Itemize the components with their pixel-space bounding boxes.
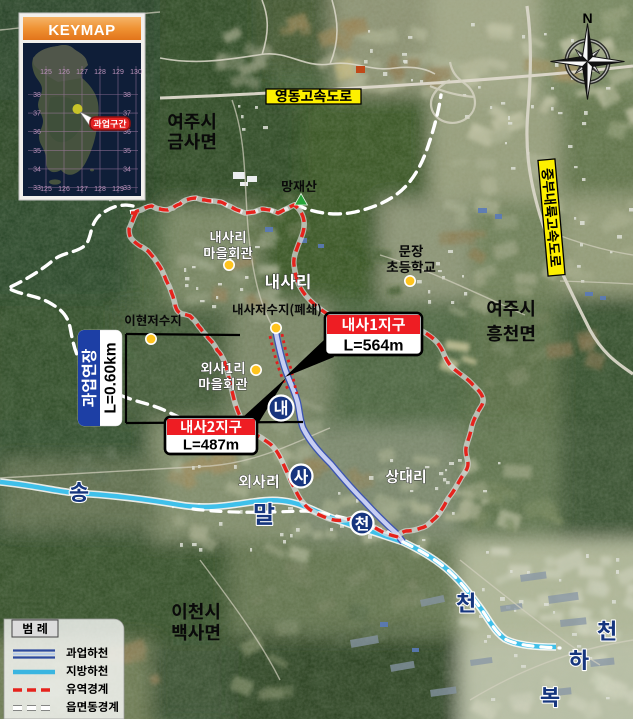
svg-text:127: 127 [76, 69, 88, 76]
svg-text:L=0.60km: L=0.60km [103, 342, 120, 413]
svg-text:125: 125 [40, 186, 52, 193]
svg-text:126: 126 [58, 186, 70, 193]
svg-text:128: 128 [94, 186, 106, 193]
svg-text:35: 35 [123, 148, 131, 155]
svg-text:35: 35 [33, 148, 41, 155]
svg-text:130: 130 [130, 69, 142, 76]
svg-text:38: 38 [33, 92, 41, 99]
svg-text:34: 34 [33, 166, 41, 173]
svg-text:36: 36 [33, 129, 41, 136]
svg-text:128: 128 [94, 69, 106, 76]
svg-text:37: 37 [33, 111, 41, 118]
svg-text:125: 125 [40, 69, 52, 76]
svg-text:L=564m: L=564m [343, 338, 403, 355]
svg-text:129: 129 [112, 186, 124, 193]
svg-text:N: N [582, 10, 592, 26]
svg-text:126: 126 [58, 69, 70, 76]
svg-text:129: 129 [112, 69, 124, 76]
svg-text:33: 33 [123, 185, 131, 192]
svg-text:34: 34 [123, 166, 131, 173]
svg-text:38: 38 [123, 92, 131, 99]
svg-text:KEYMAP: KEYMAP [48, 22, 115, 39]
svg-text:L=487m: L=487m [183, 437, 239, 454]
svg-text:127: 127 [76, 186, 88, 193]
